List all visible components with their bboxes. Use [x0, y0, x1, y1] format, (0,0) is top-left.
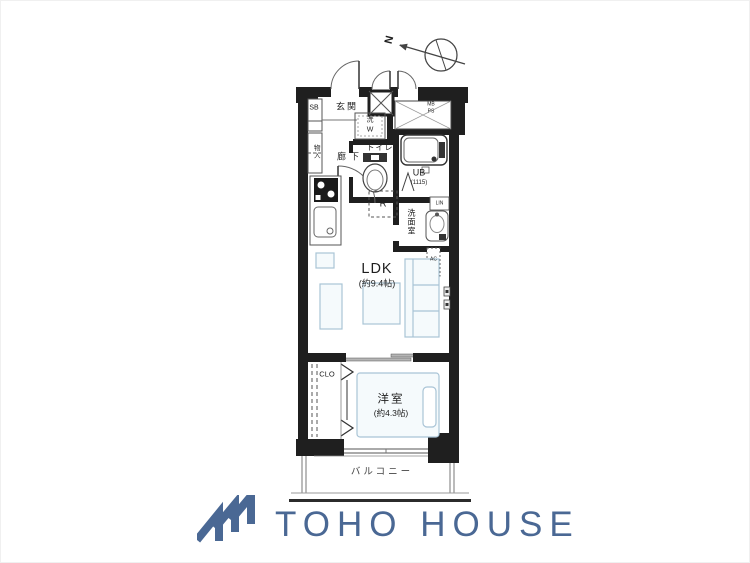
meter-box-area	[395, 101, 451, 129]
meter-box-label: MB	[427, 103, 435, 108]
kitchen-sink-icon	[314, 207, 336, 237]
shaft-box	[369, 91, 393, 115]
ldk-label: LDK	[361, 262, 392, 277]
sideboard-icon	[316, 253, 334, 268]
company-name: TOHO HOUSE	[263, 505, 580, 545]
gas-stove-icon	[314, 178, 338, 202]
unit-bath-size-label: (1115)	[411, 180, 427, 186]
entrance-label: 玄関	[336, 103, 358, 112]
shoe-box-label: SB	[309, 105, 318, 112]
closet-label: CLO	[319, 370, 334, 378]
washroom-label: 洗面室	[407, 209, 415, 236]
hallway-label: 廊下	[337, 153, 363, 162]
toilet-label: トイレ	[367, 144, 394, 152]
unit-bath-label: UB	[413, 169, 426, 178]
washer-kanji-label: 洗	[367, 117, 374, 124]
balcony-label: バルコニー	[351, 467, 413, 477]
western-room-size-label: (約4.3帖)	[374, 409, 408, 418]
storage-label: 物入	[312, 145, 319, 160]
western-room-label: 洋室	[378, 394, 405, 406]
toho-house-logo-icon	[197, 495, 263, 555]
pipe-space-label: PS	[428, 110, 435, 115]
tv-board-icon	[320, 284, 342, 329]
floor-plan-page: N 玄関 SB 物入 廊下 トイレ 洗 W MB PS UB (1115) 洗面…	[0, 0, 750, 563]
ac-label: AC	[430, 258, 437, 263]
ldk-size-label: (約9.4帖)	[359, 280, 396, 289]
kitchen-counter	[310, 176, 341, 245]
table-icon	[363, 283, 400, 324]
washer-letter-label: W	[367, 127, 374, 134]
sofa-icon	[405, 259, 439, 337]
linen-label: LIN	[436, 201, 444, 206]
refrigerator-label: R	[380, 199, 387, 209]
toilet-bowl-icon	[363, 153, 387, 192]
toho-house-logo: TOHO HOUSE	[197, 495, 580, 555]
north-compass-arrow-icon	[399, 39, 465, 71]
